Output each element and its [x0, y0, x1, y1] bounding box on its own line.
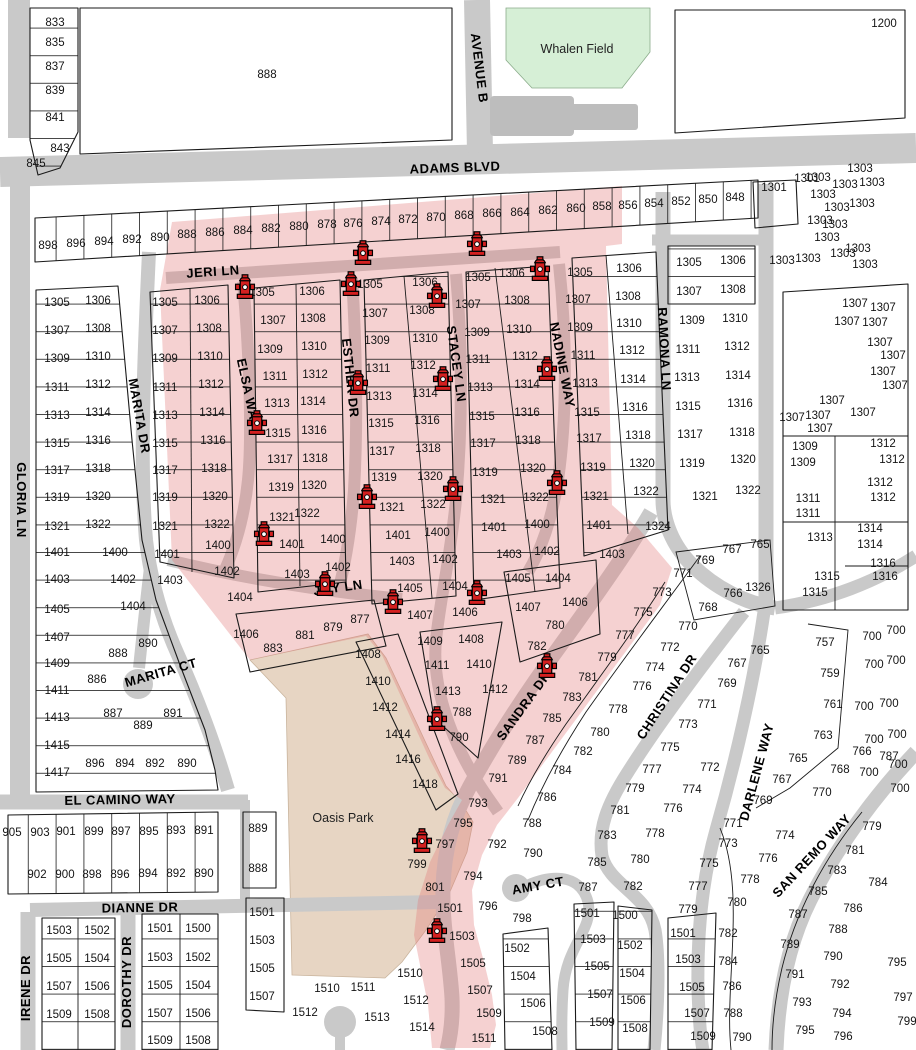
- lot-number-label: 1401: [481, 522, 507, 534]
- lot-number-label: 791: [785, 969, 804, 981]
- lot-number-label: 1501: [147, 923, 173, 935]
- lot-number-label: 1403: [599, 549, 625, 561]
- lot-number-label: 1501: [670, 928, 696, 940]
- lot-number-label: 1514: [409, 1022, 435, 1034]
- lot-number-label: 774: [775, 830, 795, 842]
- lot-number-label: 1501: [574, 908, 600, 920]
- lot-number-label: 1409: [417, 636, 443, 648]
- lot-number-label: 1320: [629, 458, 655, 470]
- lot-number-label: 1320: [202, 491, 228, 503]
- lot-number-label: 839: [45, 85, 64, 97]
- lot-number-label: 878: [317, 219, 336, 231]
- lot-number-label: 1305: [44, 297, 70, 309]
- lot-number-label: 757: [815, 637, 834, 649]
- lot-number-label: 769: [695, 555, 714, 567]
- lot-number-label: 866: [482, 208, 501, 220]
- lot-number-label: 1315: [368, 418, 394, 430]
- lot-number-label: 1317: [576, 433, 602, 445]
- lot-number-label: 1307: [805, 410, 831, 422]
- lot-number-label: 886: [205, 227, 224, 239]
- lot-number-label: 894: [138, 868, 158, 880]
- lot-number-label: 1303: [810, 189, 836, 201]
- lot-number-label: 1318: [201, 463, 227, 475]
- lot-number-label: 1318: [729, 427, 755, 439]
- lot-number-label: 1412: [372, 702, 398, 714]
- lot-number-label: 864: [510, 207, 530, 219]
- lot-number-label: 883: [263, 643, 282, 655]
- street-name-label: IRENE DR: [18, 955, 33, 1021]
- lot-number-label: 1505: [584, 961, 610, 973]
- lot-number-label: 850: [698, 194, 717, 206]
- lot-number-label: 1316: [301, 425, 327, 437]
- lot-number-label: 790: [823, 951, 842, 963]
- lot-number-label: 1319: [152, 492, 178, 504]
- lot-number-label: 771: [697, 699, 716, 711]
- lot-number-label: 700: [864, 734, 883, 746]
- lot-number-label: 1307: [880, 350, 906, 362]
- lot-number-label: 1319: [580, 462, 606, 474]
- lot-number-label: 1314: [514, 379, 540, 391]
- lot-number-label: 1504: [185, 980, 211, 992]
- lot-number-label: 796: [478, 901, 497, 913]
- lot-number-label: 1311: [571, 350, 596, 362]
- lot-number-label: 1507: [249, 991, 275, 1003]
- lot-number-label: 1308: [615, 291, 641, 303]
- lot-number-label: 773: [718, 838, 737, 850]
- lot-number-label: 1303: [814, 232, 840, 244]
- lot-number-label: 783: [597, 830, 616, 842]
- lot-number-label: 1303: [847, 163, 873, 175]
- lot-number-label: 1402: [110, 574, 136, 586]
- lot-number-label: 897: [111, 826, 130, 838]
- lot-number-label: 1312: [879, 454, 905, 466]
- lot-number-label: 833: [45, 17, 64, 29]
- lot-number-label: 1316: [727, 398, 753, 410]
- lot-number-label: 894: [115, 758, 135, 770]
- lot-number-label: 896: [66, 238, 85, 250]
- lot-number-label: 1402: [214, 566, 240, 578]
- lot-number-label: 776: [663, 803, 682, 815]
- lot-number-label: 777: [688, 881, 707, 893]
- lot-number-label: 1309: [152, 353, 178, 365]
- lot-number-label: 1310: [722, 313, 748, 325]
- lot-number-label: 1320: [730, 454, 756, 466]
- lot-number-label: 1412: [482, 684, 508, 696]
- lot-number-label: 1503: [46, 925, 72, 937]
- lot-number-label: 779: [625, 783, 644, 795]
- lot-number-label: 902: [27, 869, 46, 881]
- lot-number-label: 1316: [514, 407, 540, 419]
- lot-number-label: 770: [812, 787, 831, 799]
- lot-number-label: 870: [426, 212, 445, 224]
- lot-number-label: 1307: [819, 395, 845, 407]
- lot-number-label: 771: [673, 568, 692, 580]
- lot-number-label: 780: [545, 620, 564, 632]
- lot-number-label: 788: [723, 1008, 742, 1020]
- lot-number-label: 1511: [351, 982, 376, 994]
- bottom-culdesac: [324, 1006, 356, 1038]
- lot-number-label: 1316: [85, 435, 111, 447]
- lot-number-label: 1311: [466, 354, 491, 366]
- lot-number-label: 776: [632, 681, 651, 693]
- lot-number-label: 787: [879, 751, 898, 763]
- lot-number-label: 787: [578, 882, 597, 894]
- lot-number-label: 1506: [84, 981, 110, 993]
- lot-number-label: 700: [862, 631, 881, 643]
- lot-number-label: 1403: [44, 574, 70, 586]
- lot-number-label: 1311: [153, 382, 178, 394]
- lot-number-label: 1403: [389, 556, 415, 568]
- lot-number-label: 761: [823, 699, 842, 711]
- lot-number-label: 782: [573, 746, 592, 758]
- lot-number-label: 1307: [152, 325, 178, 337]
- lot-number-label: 1312: [85, 379, 111, 391]
- lot-number-label: 700: [879, 698, 898, 710]
- lot-number-label: 1308: [300, 313, 326, 325]
- lot-number-label: 1507: [46, 981, 72, 993]
- lot-number-label: 778: [645, 828, 664, 840]
- lot-number-label: 1401: [586, 520, 612, 532]
- lot-number-label: 1307: [867, 337, 893, 349]
- lot-number-label: 1317: [677, 429, 703, 441]
- lot-number-label: 789: [780, 939, 799, 951]
- lot-number-label: 1307: [779, 412, 805, 424]
- lot-number-label: 785: [587, 857, 606, 869]
- lot-number-label: 1303: [832, 179, 858, 191]
- lot-number-label: 1405: [505, 573, 531, 585]
- lot-number-label: 782: [718, 928, 737, 940]
- lot-number-label: 1312: [512, 351, 538, 363]
- lot-number-label: 888: [248, 863, 267, 875]
- lot-number-label: 1505: [460, 958, 486, 970]
- lot-number-label: 1401: [44, 547, 70, 559]
- lot-number-label: 797: [435, 839, 454, 851]
- lot-number-label: 1313: [152, 410, 178, 422]
- lot-number-label: 1312: [410, 360, 436, 372]
- lot-number-label: 1317: [44, 465, 70, 477]
- lot-number-label: 776: [758, 853, 777, 865]
- lot-number-label: 1400: [424, 527, 450, 539]
- lot-number-label: 1303: [824, 202, 850, 214]
- lot-number-label: 1311: [796, 508, 821, 520]
- lot-number-label: 770: [678, 621, 697, 633]
- lot-number-label: 1503: [249, 935, 275, 947]
- lot-number-label: 1501: [249, 907, 275, 919]
- lot-number-label: 1407: [44, 632, 70, 644]
- lot-number-label: 901: [56, 826, 75, 838]
- parcel-map: 8338358378398418438458881200898896894892…: [0, 0, 916, 1050]
- lot-number-label: 1509: [589, 1017, 615, 1029]
- lot-number-label: 1315: [802, 587, 828, 599]
- lot-number-label: 780: [727, 897, 746, 909]
- lot-number-label: 893: [166, 825, 185, 837]
- lot-number-label: 1311: [366, 363, 391, 375]
- lot-number-label: 1308: [196, 323, 222, 335]
- lot-number-label: 794: [463, 871, 483, 883]
- lot-number-label: 700: [886, 655, 905, 667]
- lot-number-label: 797: [893, 992, 912, 1004]
- lot-number-label: 1308: [504, 295, 530, 307]
- lot-number-label: 1314: [412, 388, 438, 400]
- lot-number-label: 1505: [249, 963, 275, 975]
- lot-number-label: 1504: [619, 968, 645, 980]
- lot-number-label: 881: [295, 630, 314, 642]
- lot-number-label: 1416: [395, 754, 421, 766]
- lot-number-label: 782: [623, 881, 642, 893]
- lot-number-label: 1318: [515, 435, 541, 447]
- lot-number-label: 1402: [432, 554, 458, 566]
- lot-number-label: 1313: [572, 378, 598, 390]
- lot-number-label: 1315: [469, 411, 495, 423]
- lot-number-label: 1301: [761, 182, 787, 194]
- lot-number-label: 765: [750, 645, 769, 657]
- lot-number-label: 876: [343, 218, 362, 230]
- lot-number-label: 1504: [84, 953, 110, 965]
- lot-number-label: 1404: [545, 573, 571, 585]
- lot-number-label: 782: [527, 641, 546, 653]
- lot-number-label: 772: [700, 762, 719, 774]
- lot-number-label: 1318: [415, 443, 441, 455]
- lot-number-label: 784: [552, 765, 572, 777]
- lot-number-label: 781: [578, 672, 597, 684]
- lot-number-label: 775: [660, 742, 679, 754]
- lot-number-label: 773: [678, 719, 697, 731]
- lot-number-label: 1322: [294, 508, 320, 520]
- lot-number-label: 1306: [194, 295, 220, 307]
- lot-number-label: 1316: [870, 558, 896, 570]
- lot-number-label: 1401: [385, 530, 411, 542]
- lot-number-label: 1200: [871, 18, 897, 30]
- lot-number-label: 887: [103, 708, 122, 720]
- lot-number-label: 879: [323, 622, 342, 634]
- lot-number-label: 1319: [268, 482, 294, 494]
- lot-number-label: 874: [371, 216, 391, 228]
- lot-number-label: 1400: [524, 519, 550, 531]
- lot-number-label: 889: [248, 823, 267, 835]
- lot-number-label: 1310: [301, 341, 327, 353]
- lot-number-label: 788: [828, 924, 847, 936]
- lot-number-label: 1319: [472, 467, 498, 479]
- lot-number-label: 1509: [147, 1035, 173, 1047]
- lot-number-label: 1310: [506, 324, 532, 336]
- lot-number-label: 1308: [85, 323, 111, 335]
- lot-number-label: 1401: [279, 539, 305, 551]
- lot-number-label: 1506: [185, 1008, 211, 1020]
- lot-number-label: 1320: [520, 463, 546, 475]
- lot-number-label: 1404: [227, 592, 253, 604]
- lot-number-label: 860: [566, 203, 585, 215]
- lot-number-label: 880: [289, 221, 308, 233]
- lot-number-label: 1405: [44, 604, 70, 616]
- lot-number-label: 854: [644, 198, 664, 210]
- lot-number-label: 1313: [366, 391, 392, 403]
- lot-number-label: 759: [820, 668, 839, 680]
- lot-number-label: 892: [145, 758, 164, 770]
- lot-number-label: 1503: [147, 952, 173, 964]
- lot-number-label: 899: [84, 826, 103, 838]
- lot-number-label: 892: [166, 868, 185, 880]
- lot-number-label: 1322: [420, 499, 446, 511]
- lot-number-label: 1319: [679, 458, 705, 470]
- lot-number-label: 1320: [417, 471, 443, 483]
- lot-number-label: 1307: [882, 380, 908, 392]
- lot-number-label: 801: [425, 882, 444, 894]
- lot-number-label: 1316: [622, 402, 648, 414]
- lot-number-label: 1512: [292, 1007, 318, 1019]
- lot-number-label: 1309: [790, 457, 816, 469]
- lot-number-label: 1318: [302, 453, 328, 465]
- lot-number-label: 763: [813, 730, 832, 742]
- lot-number-label: 1507: [467, 985, 493, 997]
- lot-number-label: 1317: [369, 446, 395, 458]
- lot-number-label: 1513: [364, 1012, 390, 1024]
- lot-number-label: 1310: [412, 333, 438, 345]
- lot-number-label: 1307: [862, 317, 888, 329]
- lot-number-label: 784: [868, 877, 888, 889]
- lot-number-label: 766: [723, 588, 742, 600]
- lot-number-label: 1315: [44, 438, 70, 450]
- lot-number-label: 862: [538, 205, 557, 217]
- lot-number-label: 779: [862, 821, 881, 833]
- lot-number-label: 882: [261, 223, 280, 235]
- lot-number-label: 868: [454, 210, 473, 222]
- lot-number-label: 1310: [85, 351, 111, 363]
- lot-number-label: 1507: [147, 1008, 173, 1020]
- lot-number-label: 1321: [269, 512, 295, 524]
- lot-number-label: 1502: [84, 925, 110, 937]
- lot-number-label: 1510: [397, 968, 423, 980]
- lot-number-label: 1326: [745, 582, 771, 594]
- lot-number-label: 1503: [580, 934, 606, 946]
- lot-number-label: 1303: [849, 198, 875, 210]
- lot-number-label: 779: [678, 904, 697, 916]
- lot-number-label: 1321: [44, 521, 70, 533]
- lot-number-label: 1307: [870, 366, 896, 378]
- lot-number-label: 1307: [44, 325, 70, 337]
- lot-number-label: 1505: [147, 980, 173, 992]
- lot-number-label: 1502: [185, 952, 211, 964]
- lot-number-label: 1414: [385, 729, 411, 741]
- lot-number-label: 1400: [320, 534, 346, 546]
- lot-number-label: 852: [671, 196, 690, 208]
- lot-number-label: 1506: [620, 995, 646, 1007]
- lot-number-label: 795: [887, 957, 906, 969]
- lot-number-label: 1312: [867, 477, 893, 489]
- lot-number-label: 792: [830, 979, 849, 991]
- lot-number-label: 896: [85, 758, 104, 770]
- lot-number-label: 1508: [532, 1026, 558, 1038]
- lot-number-label: 891: [163, 708, 182, 720]
- lot-number-label: 1413: [44, 712, 70, 724]
- lot-number-label: 848: [725, 192, 744, 204]
- lot-number-label: 1322: [85, 519, 111, 531]
- lot-number-label: 1322: [523, 492, 549, 504]
- lot-number-label: 777: [615, 630, 634, 642]
- lot-number-label: 1309: [567, 322, 593, 334]
- street-name-label: GLORIA LN: [14, 462, 29, 538]
- lot-number-label: 1303: [769, 255, 795, 267]
- lot-number-label: 1319: [371, 472, 397, 484]
- lot-number-label: 1314: [300, 396, 326, 408]
- lot-number-label: 793: [792, 997, 811, 1009]
- lot-number-label: 1322: [204, 519, 230, 531]
- lot-number-label: 1410: [365, 676, 391, 688]
- street-name-label: ADAMS BLVD: [409, 158, 500, 176]
- lot-number-label: 884: [233, 225, 253, 237]
- lot-number-label: 894: [94, 236, 114, 248]
- lot-number-label: 1413: [435, 686, 461, 698]
- lot-number-label: 1501: [437, 903, 463, 915]
- lot-number-label: 1307: [870, 302, 896, 314]
- lot-number-label: 766: [852, 746, 871, 758]
- lot-number-label: 784: [718, 956, 738, 968]
- street-name-label: EL CAMINO WAY: [64, 791, 175, 808]
- lot-number-label: 1314: [857, 539, 883, 551]
- lot-number-label: 1315: [265, 428, 291, 440]
- place-name-label: Whalen Field: [541, 42, 614, 56]
- lot-number-label: 1321: [152, 521, 178, 533]
- lot-number-label: 700: [864, 659, 883, 671]
- lot-number-label: 774: [645, 662, 665, 674]
- lot-number-label: 1308: [720, 284, 746, 296]
- lot-number-label: 775: [699, 858, 718, 870]
- lot-number-label: 1306: [85, 295, 111, 307]
- lot-number-label: 1303: [822, 219, 848, 231]
- lot-number-label: 1307: [842, 298, 868, 310]
- lot-number-label: 799: [407, 859, 426, 871]
- lot-number-label: 1316: [200, 435, 226, 447]
- lot-number-label: 1402: [534, 546, 560, 558]
- lot-number-label: 845: [26, 158, 45, 170]
- lot-number-label: 700: [886, 625, 905, 637]
- lot-number-label: 1503: [449, 931, 475, 943]
- street-name-label: DOROTHY DR: [119, 936, 134, 1028]
- lot-number-label: 843: [50, 143, 69, 155]
- lot-number-label: 841: [45, 112, 64, 124]
- lot-number-label: 700: [854, 701, 873, 713]
- lot-number-label: 786: [843, 903, 862, 915]
- lot-number-label: 1305: [567, 267, 593, 279]
- lot-number-label: 1407: [515, 602, 541, 614]
- lot-number-label: 1418: [412, 779, 438, 791]
- lot-number-label: 786: [722, 981, 741, 993]
- lot-number-label: 1303: [805, 172, 831, 184]
- lot-number-label: 1512: [403, 995, 429, 1007]
- lot-number-label: 888: [177, 229, 196, 241]
- lot-number-label: 1312: [619, 345, 645, 357]
- lot-number-label: 1400: [205, 540, 231, 552]
- lot-number-label: 798: [512, 913, 531, 925]
- lot-number-label: 1303: [852, 259, 878, 271]
- lot-number-label: 1508: [185, 1035, 211, 1047]
- lot-number-label: 1504: [510, 971, 536, 983]
- lot-number-label: 1507: [587, 989, 613, 1001]
- lot-number-label: 1503: [675, 954, 701, 966]
- lot-number-label: 767: [772, 774, 791, 786]
- lot-number-label: 858: [592, 201, 611, 213]
- lot-number-label: 1403: [284, 569, 310, 581]
- lot-number-label: 789: [507, 755, 526, 767]
- lot-number-label: 889: [133, 720, 152, 732]
- lot-number-label: 1310: [616, 318, 642, 330]
- lot-number-label: 700: [887, 729, 906, 741]
- lot-number-label: 777: [642, 764, 661, 776]
- lot-number-label: 788: [452, 707, 471, 719]
- lot-number-label: 837: [45, 61, 64, 73]
- lot-number-label: 794: [832, 1008, 852, 1020]
- lot-number-label: 1313: [807, 532, 833, 544]
- lot-number-label: 1315: [814, 571, 840, 583]
